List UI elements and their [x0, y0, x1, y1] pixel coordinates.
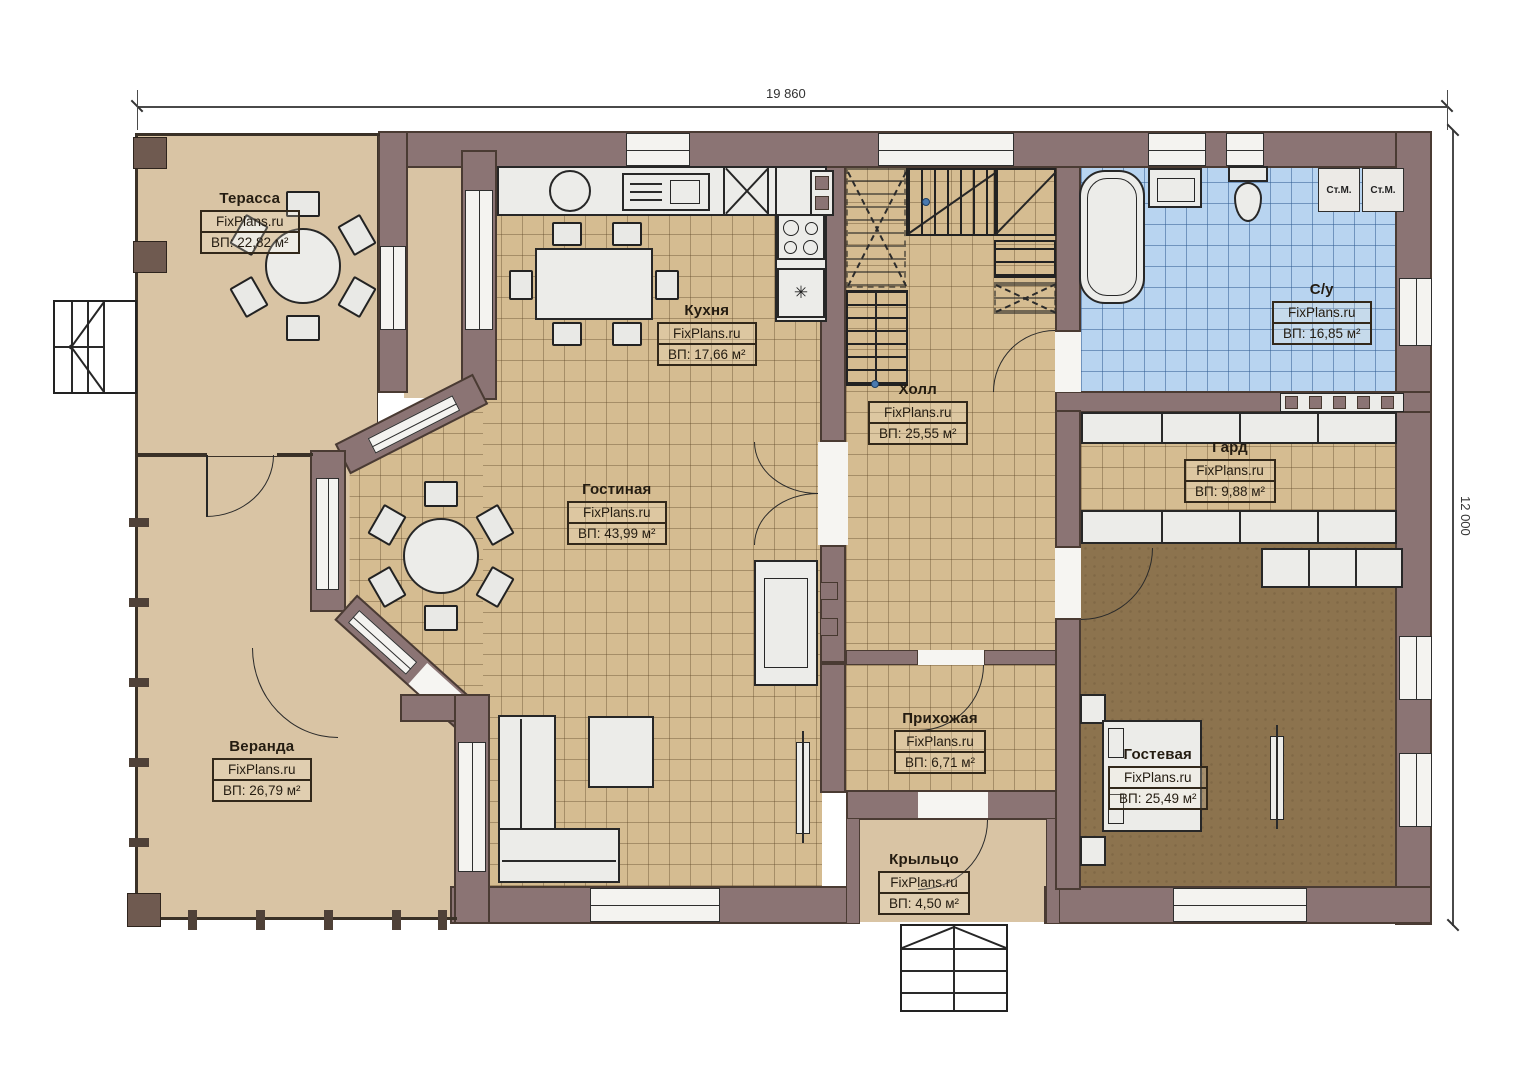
room-area: ВП: 16,85 м² [1274, 322, 1370, 343]
room-brand: FixPlans.ru [1274, 303, 1370, 322]
chair [509, 270, 533, 300]
living-table [403, 518, 479, 594]
sofa-cushion-line [502, 860, 616, 862]
deck-post [129, 598, 149, 607]
veranda-edge-bottom [135, 917, 457, 920]
fireplace-flue-block [820, 582, 838, 600]
bath-sink-basin [1157, 178, 1195, 202]
freezer-icon: ✳ [794, 283, 808, 303]
window-top-bathroom [1148, 133, 1206, 166]
step-diag [954, 926, 1007, 949]
radiator-line [802, 731, 804, 843]
veranda-edge-left [135, 458, 138, 920]
niche-block [1333, 396, 1346, 409]
dimension-line-top [137, 106, 1447, 108]
porch-steps [900, 924, 1008, 1012]
burner [784, 241, 797, 254]
room-area: ВП: 22,82 м² [202, 231, 298, 252]
deck-post [438, 910, 447, 930]
sink-basin [670, 180, 700, 204]
niche-block [1285, 396, 1298, 409]
window-top-bathroom-2 [1226, 133, 1264, 166]
room-brand: FixPlans.ru [214, 760, 310, 779]
room-area: ВП: 25,55 м² [870, 422, 966, 443]
washer-label: Ст.М. [1370, 185, 1395, 196]
living-hall-door-gap [818, 442, 848, 545]
niche-block [1357, 396, 1370, 409]
room-area: ВП: 43,99 м² [569, 522, 665, 543]
hall-bath-door-gap [1055, 332, 1081, 392]
stair-center-rail [875, 292, 877, 384]
room-area: ВП: 25,49 м² [1110, 787, 1206, 808]
chair [612, 222, 642, 246]
deck-post [392, 910, 401, 930]
room-name: Гард [1184, 439, 1276, 456]
room-brand: FixPlans.ru [880, 873, 968, 892]
coffee-table [588, 716, 654, 788]
room-name: С/у [1272, 281, 1372, 298]
window-right-guest-2 [1399, 753, 1432, 827]
room-area: ВП: 17,66 м² [659, 343, 755, 364]
terrace-pillar [133, 137, 167, 169]
room-label-guest: Гостевая FixPlans.ru ВП: 25,49 м² [1108, 746, 1208, 810]
terrace-pillar [133, 241, 167, 273]
room-info-box: FixPlans.ru ВП: 16,85 м² [1272, 301, 1372, 345]
washing-machine: Ст.М. [1318, 168, 1360, 212]
wall-hall-entry-a [846, 650, 918, 665]
wall-porch-left [846, 818, 860, 924]
wall-hall-west-mid [820, 545, 846, 663]
stair-arrow-shaft [55, 346, 105, 348]
stove [777, 214, 825, 260]
closet-divider [1239, 512, 1241, 542]
room-info-box: FixPlans.ru ВП: 22,82 м² [200, 210, 300, 254]
room-brand: FixPlans.ru [870, 403, 966, 422]
room-info-box: FixPlans.ru ВП: 6,71 м² [894, 730, 986, 774]
burner [803, 240, 818, 255]
closet-divider [1161, 414, 1163, 442]
sink-drainer-line [630, 183, 662, 185]
front-door-gap [918, 792, 988, 818]
room-area: ВП: 4,50 м² [880, 892, 968, 913]
terrace-divider-b [277, 453, 313, 456]
fireplace-inner [764, 578, 808, 668]
terrace-edge-left [135, 133, 138, 463]
room-area: ВП: 9,88 м² [1186, 480, 1274, 501]
deck-post [129, 838, 149, 847]
wall-guest-west [1055, 618, 1081, 890]
wall-hall-east-top [1055, 166, 1081, 332]
terrace-edge-top [135, 133, 380, 136]
kitchen-round-sink [549, 170, 591, 212]
guest-radiator [1270, 736, 1284, 820]
room-info-box: FixPlans.ru ВП: 25,55 м² [868, 401, 968, 445]
washer-label: Ст.М. [1326, 185, 1351, 196]
room-name: Холл [868, 381, 968, 398]
deck-post [129, 758, 149, 767]
room-info-box: FixPlans.ru ВП: 43,99 м² [567, 501, 667, 545]
bay-left-window [316, 478, 339, 590]
room-label-veranda: Веранда FixPlans.ru ВП: 26,79 м² [212, 738, 312, 802]
room-brand: FixPlans.ru [569, 503, 665, 522]
radiator-line [1276, 725, 1278, 829]
room-info-box: FixPlans.ru ВП: 17,66 м² [657, 322, 757, 366]
wardrobe-closet-bottom [1081, 510, 1397, 544]
bath-sink [1148, 168, 1202, 208]
window-top-stairs [878, 133, 1014, 166]
guest-door-gap [1055, 548, 1081, 618]
flue-block [815, 176, 829, 190]
closet-divider [1317, 512, 1319, 542]
chair [286, 315, 320, 341]
deck-post [188, 910, 197, 930]
sink-drainer-line [630, 191, 662, 193]
room-brand: FixPlans.ru [896, 732, 984, 751]
dimension-height: 12 000 [1458, 496, 1473, 536]
room-info-box: FixPlans.ru ВП: 25,49 м² [1108, 766, 1208, 810]
room-label-porch: Крыльцо FixPlans.ru ВП: 4,50 м² [878, 851, 970, 915]
window-bottom-guest [1173, 888, 1307, 922]
deck-post [129, 678, 149, 687]
fireplace [754, 560, 818, 686]
room-name: Терасса [200, 190, 300, 207]
stair-node-1 [922, 198, 930, 206]
bathtub [1079, 170, 1145, 304]
window-right-bathroom [1399, 278, 1432, 346]
room-brand: FixPlans.ru [202, 212, 298, 231]
deck-post [324, 910, 333, 930]
fireplace-flue-block [820, 618, 838, 636]
window-top-kitchen [626, 133, 690, 166]
wall-hall-west-bottom [820, 663, 846, 793]
wall-hall-entry-b [984, 650, 1056, 665]
room-name: Гостиная [567, 481, 667, 498]
room-area: ВП: 26,79 м² [214, 779, 310, 800]
burner [805, 222, 818, 235]
chair [424, 605, 458, 631]
room-name: Прихожая [894, 710, 986, 727]
chair [552, 222, 582, 246]
window-bottom-living [590, 888, 720, 922]
chair [612, 322, 642, 346]
toilet-tank [1228, 166, 1268, 182]
room-name: Кухня [657, 302, 757, 319]
stair-flight-right [994, 240, 1056, 278]
veranda-corner-post [127, 893, 161, 927]
closet-divider [1308, 550, 1310, 586]
chair [424, 481, 458, 507]
step-center [953, 926, 955, 1010]
stair-flight-left-lower [846, 290, 908, 386]
living-left-window [458, 742, 486, 872]
dishwasher [723, 166, 769, 216]
left-exterior-stairs [53, 300, 137, 394]
chair [552, 322, 582, 346]
washing-machine: Ст.М. [1362, 168, 1404, 212]
living-radiator [796, 742, 810, 834]
burner [783, 220, 799, 236]
closet-divider [1355, 550, 1357, 586]
nightstand [1080, 836, 1106, 866]
kitchen-table [535, 248, 653, 320]
bath-niche-strip [1280, 393, 1404, 412]
room-brand: FixPlans.ru [659, 324, 755, 343]
room-area: ВП: 6,71 м² [896, 751, 984, 772]
deck-post [256, 910, 265, 930]
bathtub-inner [1087, 178, 1137, 296]
niche-block [1381, 396, 1394, 409]
room-label-wardrobe: Гард FixPlans.ru ВП: 9,88 м² [1184, 439, 1276, 503]
fridge: ✳ [777, 268, 825, 318]
room-label-terrace: Терасса FixPlans.ru ВП: 22,82 м² [200, 190, 300, 254]
room-label-kitchen: Кухня FixPlans.ru ВП: 17,66 м² [657, 302, 757, 366]
room-info-box: FixPlans.ru ВП: 26,79 м² [212, 758, 312, 802]
room-info-box: FixPlans.ru ВП: 4,50 м² [878, 871, 970, 915]
sofa-horizontal [498, 828, 620, 883]
guest-closet [1261, 548, 1403, 588]
wall-wardrobe-west [1055, 410, 1081, 548]
hall-entry-door-gap [918, 650, 984, 665]
floor-plan: ✳ Ст.М. [0, 0, 1528, 1080]
window-kitchen-left [465, 190, 493, 330]
chair [655, 270, 679, 300]
room-brand: FixPlans.ru [1186, 461, 1274, 480]
closet-divider [1317, 414, 1319, 442]
room-label-hall: Холл FixPlans.ru ВП: 25,55 м² [868, 381, 968, 445]
terrace-alcove-floor [404, 166, 464, 398]
window-right-guest-1 [1399, 636, 1432, 700]
room-name: Крыльцо [878, 851, 970, 868]
dim-ext-left [137, 90, 138, 130]
dimension-width: 19 860 [766, 86, 806, 101]
room-name: Гостевая [1108, 746, 1208, 763]
room-info-box: FixPlans.ru ВП: 9,88 м² [1184, 459, 1276, 503]
room-brand: FixPlans.ru [1110, 768, 1206, 787]
kitchen-sink-unit [622, 173, 710, 211]
flue-block [815, 196, 829, 210]
window-terrace-stub [380, 246, 406, 330]
niche-block [1309, 396, 1322, 409]
room-label-bathroom: С/у FixPlans.ru ВП: 16,85 м² [1272, 281, 1372, 345]
kitchen-flue [810, 170, 834, 216]
room-name: Веранда [212, 738, 312, 755]
step-diag [902, 926, 955, 949]
room-label-entry: Прихожая FixPlans.ru ВП: 6,71 м² [894, 710, 986, 774]
closet-divider [1239, 414, 1241, 442]
terrace-divider-a [137, 453, 207, 456]
room-label-living: Гостиная FixPlans.ru ВП: 43,99 м² [567, 481, 667, 545]
sink-drainer-line [630, 199, 662, 201]
dimension-line-right [1452, 130, 1454, 926]
deck-post [129, 518, 149, 527]
closet-divider [1161, 512, 1163, 542]
